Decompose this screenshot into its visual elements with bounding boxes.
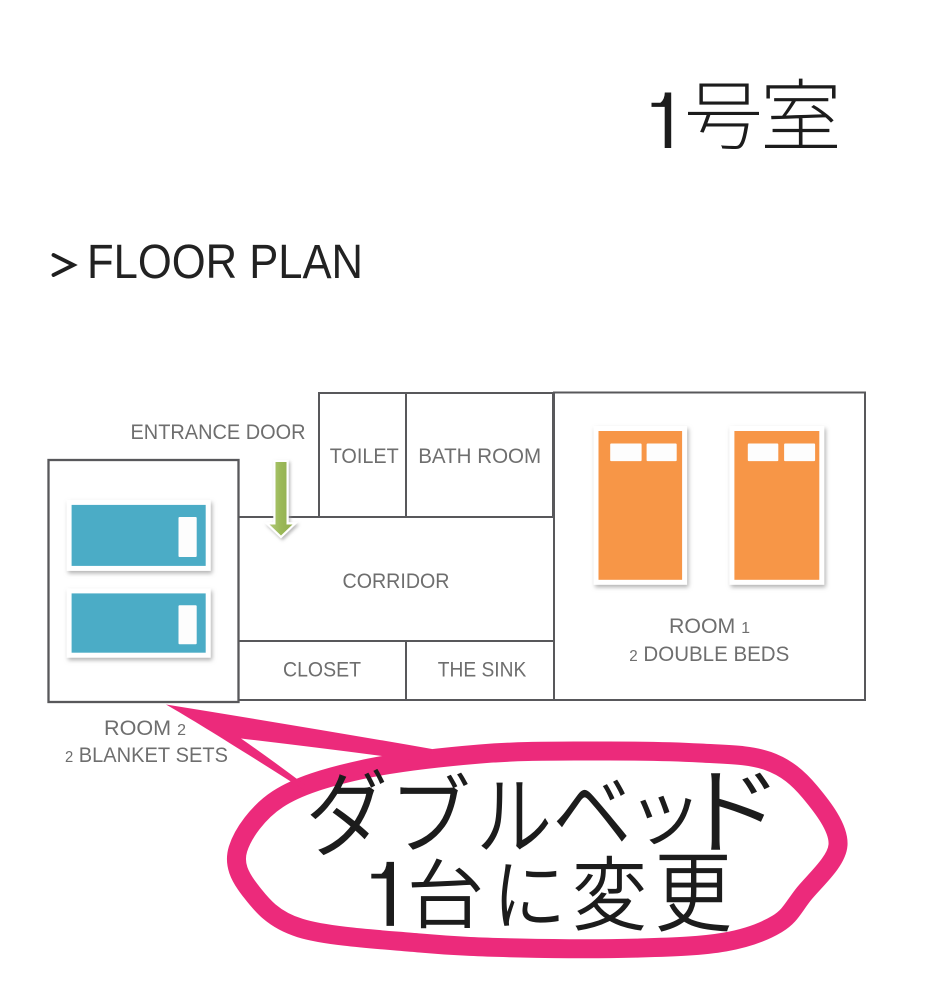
svg-text:THE SINK: THE SINK — [438, 658, 527, 682]
svg-text:CORRIDOR: CORRIDOR — [343, 569, 450, 593]
svg-text:FLOOR PLAN: FLOOR PLAN — [87, 236, 363, 289]
svg-text:ROOM 2: ROOM 2 — [104, 716, 186, 740]
svg-text:ROOM 1: ROOM 1 — [669, 614, 750, 638]
svg-text:CLOSET: CLOSET — [283, 658, 361, 682]
svg-text:2 DOUBLE BEDS: 2 DOUBLE BEDS — [629, 642, 789, 666]
svg-text:2 BLANKET SETS: 2 BLANKET SETS — [65, 743, 228, 767]
svg-text:ENTRANCE DOOR: ENTRANCE DOOR — [131, 420, 306, 444]
svg-text:BATH ROOM: BATH ROOM — [418, 444, 541, 468]
svg-text:TOILET: TOILET — [330, 444, 399, 468]
